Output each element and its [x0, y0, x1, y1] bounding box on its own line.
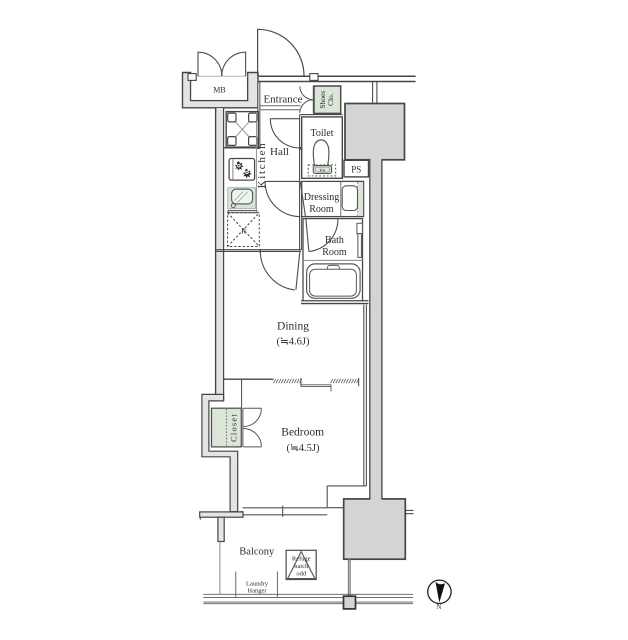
- svg-text:MB: MB: [213, 86, 225, 95]
- svg-text:(≒4.5J): (≒4.5J): [286, 443, 320, 454]
- svg-text:Balcony: Balcony: [239, 547, 275, 558]
- svg-text:N: N: [436, 604, 441, 611]
- svg-text:hatch: hatch: [294, 563, 309, 570]
- svg-text:odd: odd: [296, 570, 307, 577]
- svg-text:Closet: Closet: [229, 413, 239, 442]
- svg-text:Dressing: Dressing: [304, 192, 340, 203]
- svg-text:Room: Room: [322, 247, 347, 258]
- svg-text:R: R: [241, 227, 246, 236]
- svg-text:Dining: Dining: [277, 320, 309, 332]
- svg-text:Laundry: Laundry: [246, 581, 269, 588]
- svg-text:Bath: Bath: [325, 235, 344, 246]
- svg-text:(≒4.6J): (≒4.6J): [276, 336, 310, 347]
- svg-text:Refuge: Refuge: [292, 555, 311, 562]
- svg-text:Room: Room: [309, 204, 334, 215]
- svg-text:Toilet: Toilet: [310, 128, 333, 139]
- svg-text:Clo.: Clo.: [326, 93, 335, 106]
- svg-text:PS: PS: [351, 164, 361, 174]
- svg-text:Entrance: Entrance: [263, 93, 302, 105]
- svg-text:P/S: P/S: [319, 168, 325, 173]
- svg-text:Bedroom: Bedroom: [281, 427, 324, 439]
- svg-text:Hanger: Hanger: [247, 588, 267, 595]
- svg-text:Hall: Hall: [270, 146, 289, 158]
